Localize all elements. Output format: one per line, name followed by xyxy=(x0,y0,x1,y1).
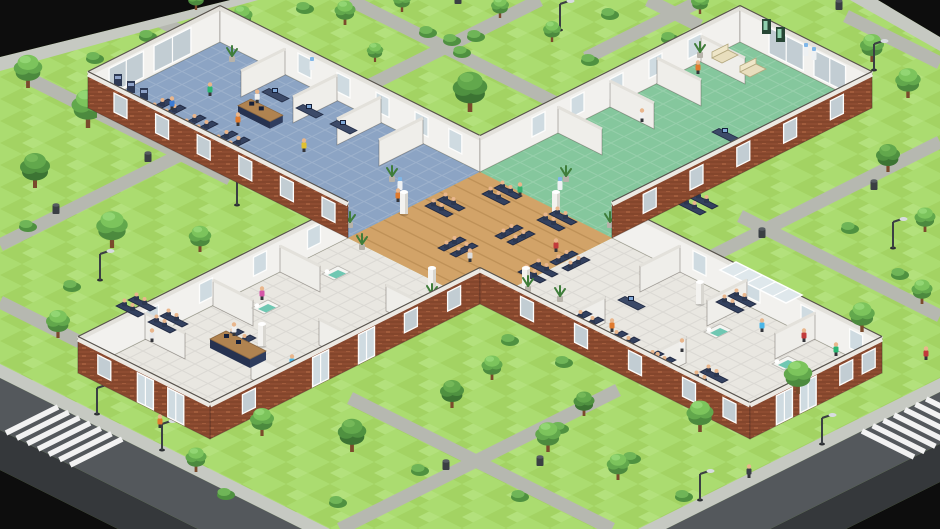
water-cooler[interactable] xyxy=(804,43,809,56)
water-cooler[interactable] xyxy=(310,57,315,70)
trash-bin xyxy=(871,179,878,190)
trash-bin xyxy=(53,203,60,214)
vending-machine[interactable] xyxy=(762,19,771,34)
pillar xyxy=(696,280,705,306)
water-cooler[interactable] xyxy=(398,177,403,190)
trash-bin xyxy=(443,459,450,470)
trash-bin xyxy=(537,455,544,466)
water-cooler[interactable] xyxy=(812,47,817,60)
vending-machine[interactable] xyxy=(776,27,785,42)
hospital-game-scene[interactable] xyxy=(0,0,940,529)
pillar xyxy=(400,190,409,216)
cabinet[interactable] xyxy=(114,74,122,86)
trash-bin xyxy=(836,0,843,10)
trash-bin xyxy=(759,227,766,238)
trash-bin xyxy=(455,0,462,4)
trash-bin xyxy=(145,151,152,162)
pillar xyxy=(258,322,267,348)
game-viewport[interactable] xyxy=(0,0,940,529)
water-cooler[interactable] xyxy=(558,177,563,190)
